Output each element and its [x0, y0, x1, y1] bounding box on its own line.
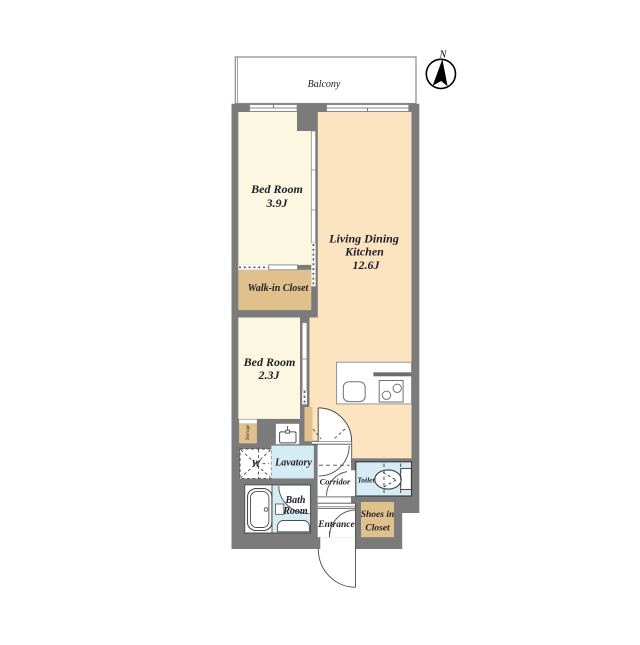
svg-text:2.3J: 2.3J [258, 368, 281, 382]
svg-text:Balcony: Balcony [308, 79, 341, 90]
svg-text:Bed Room: Bed Room [243, 355, 296, 369]
svg-text:Shoes in: Shoes in [361, 510, 395, 520]
svg-text:N: N [439, 50, 448, 61]
svg-text:Entrance: Entrance [317, 520, 355, 530]
svg-text:Bath: Bath [284, 495, 305, 506]
svg-text:3.9J: 3.9J [266, 196, 289, 210]
svg-text:Corridor: Corridor [320, 477, 351, 487]
svg-text:Storage: Storage [246, 424, 251, 440]
svg-text:W: W [252, 459, 262, 470]
svg-text:12.6J: 12.6J [353, 258, 381, 272]
svg-text:Lavatory: Lavatory [274, 458, 312, 469]
svg-text:Living Dining: Living Dining [328, 232, 399, 246]
svg-text:Toilet: Toilet [357, 476, 375, 485]
svg-text:Bed Room: Bed Room [250, 182, 303, 196]
svg-text:Closet: Closet [365, 524, 390, 534]
svg-text:Room: Room [282, 506, 308, 517]
svg-text:Walk-in Closet: Walk-in Closet [248, 283, 310, 294]
svg-text:Kitchen: Kitchen [344, 245, 384, 259]
